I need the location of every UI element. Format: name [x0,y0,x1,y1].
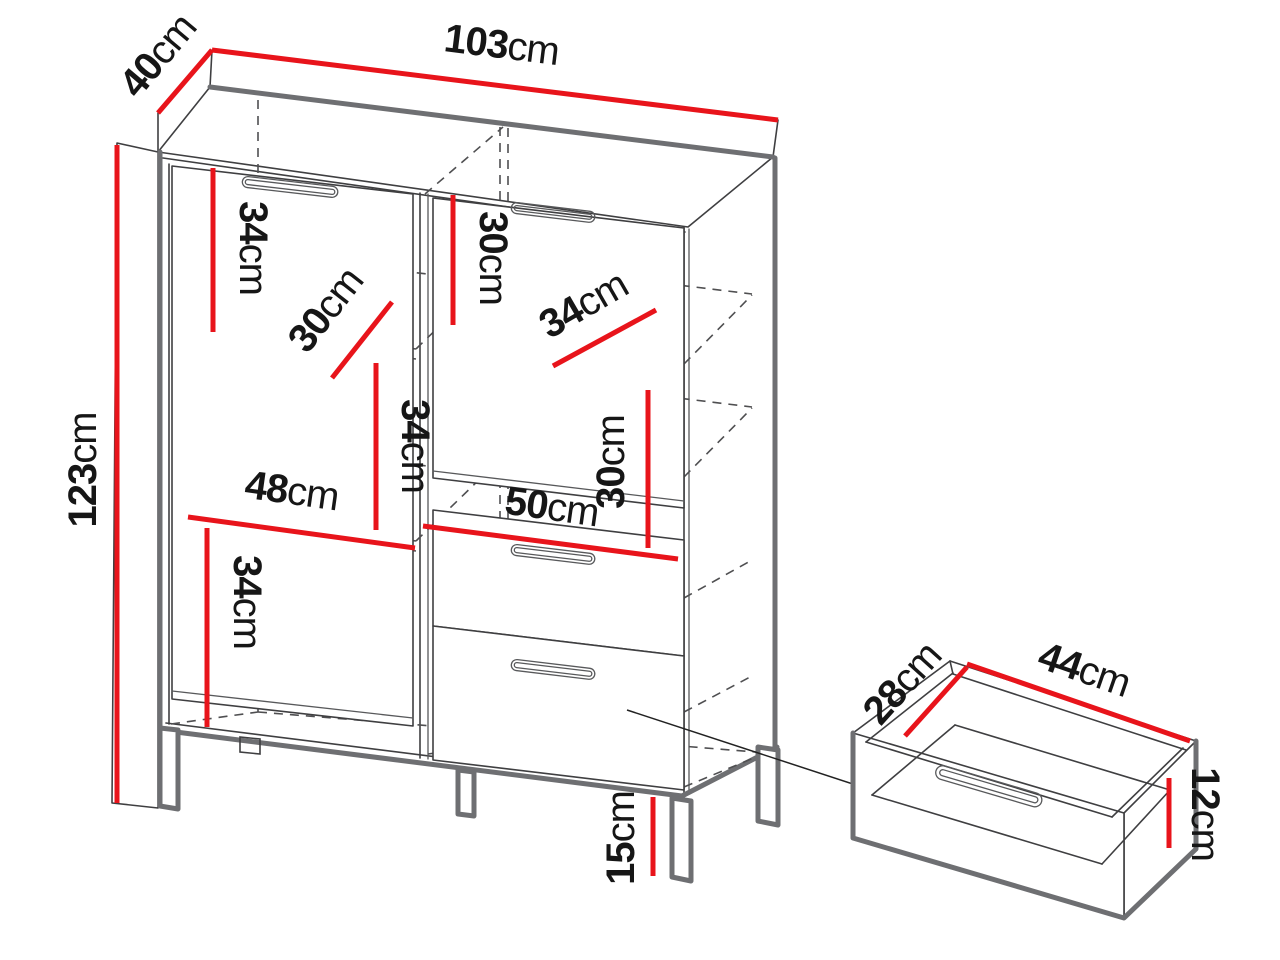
dim-left-top-section-label: 34cm [231,201,275,295]
drawer-front-face [853,733,1124,918]
dim-height-label: 123cm [61,412,105,527]
front-right-leg [672,798,691,881]
dim-width-label: 103cm [442,16,562,74]
drawer-back-corner-step [950,661,953,674]
dim-depth-label: 40cm [111,6,205,106]
dim-left-bottom-section-label: 34cm [225,555,269,649]
furniture-dimension-diagram: 103cm 40cm 123cm 34cm 30cm 30cm 34cm 34c… [0,0,1280,960]
middle-leg [458,770,474,816]
diagram-canvas: 103cm 40cm 123cm 34cm 30cm 30cm 34cm 34c… [0,0,1280,960]
dim-drawer-height-label: 12cm [1183,767,1227,861]
dim-drawer-width-label: 44cm [1033,634,1136,706]
dim-drawer-depth-label: 28cm [855,634,950,733]
front-left-leg [160,728,178,809]
dim-right-top-section-label: 30cm [471,211,515,305]
dim-leg-height-label: 15cm [599,791,643,885]
dim-left-middle-section-label: 34cm [393,399,437,493]
